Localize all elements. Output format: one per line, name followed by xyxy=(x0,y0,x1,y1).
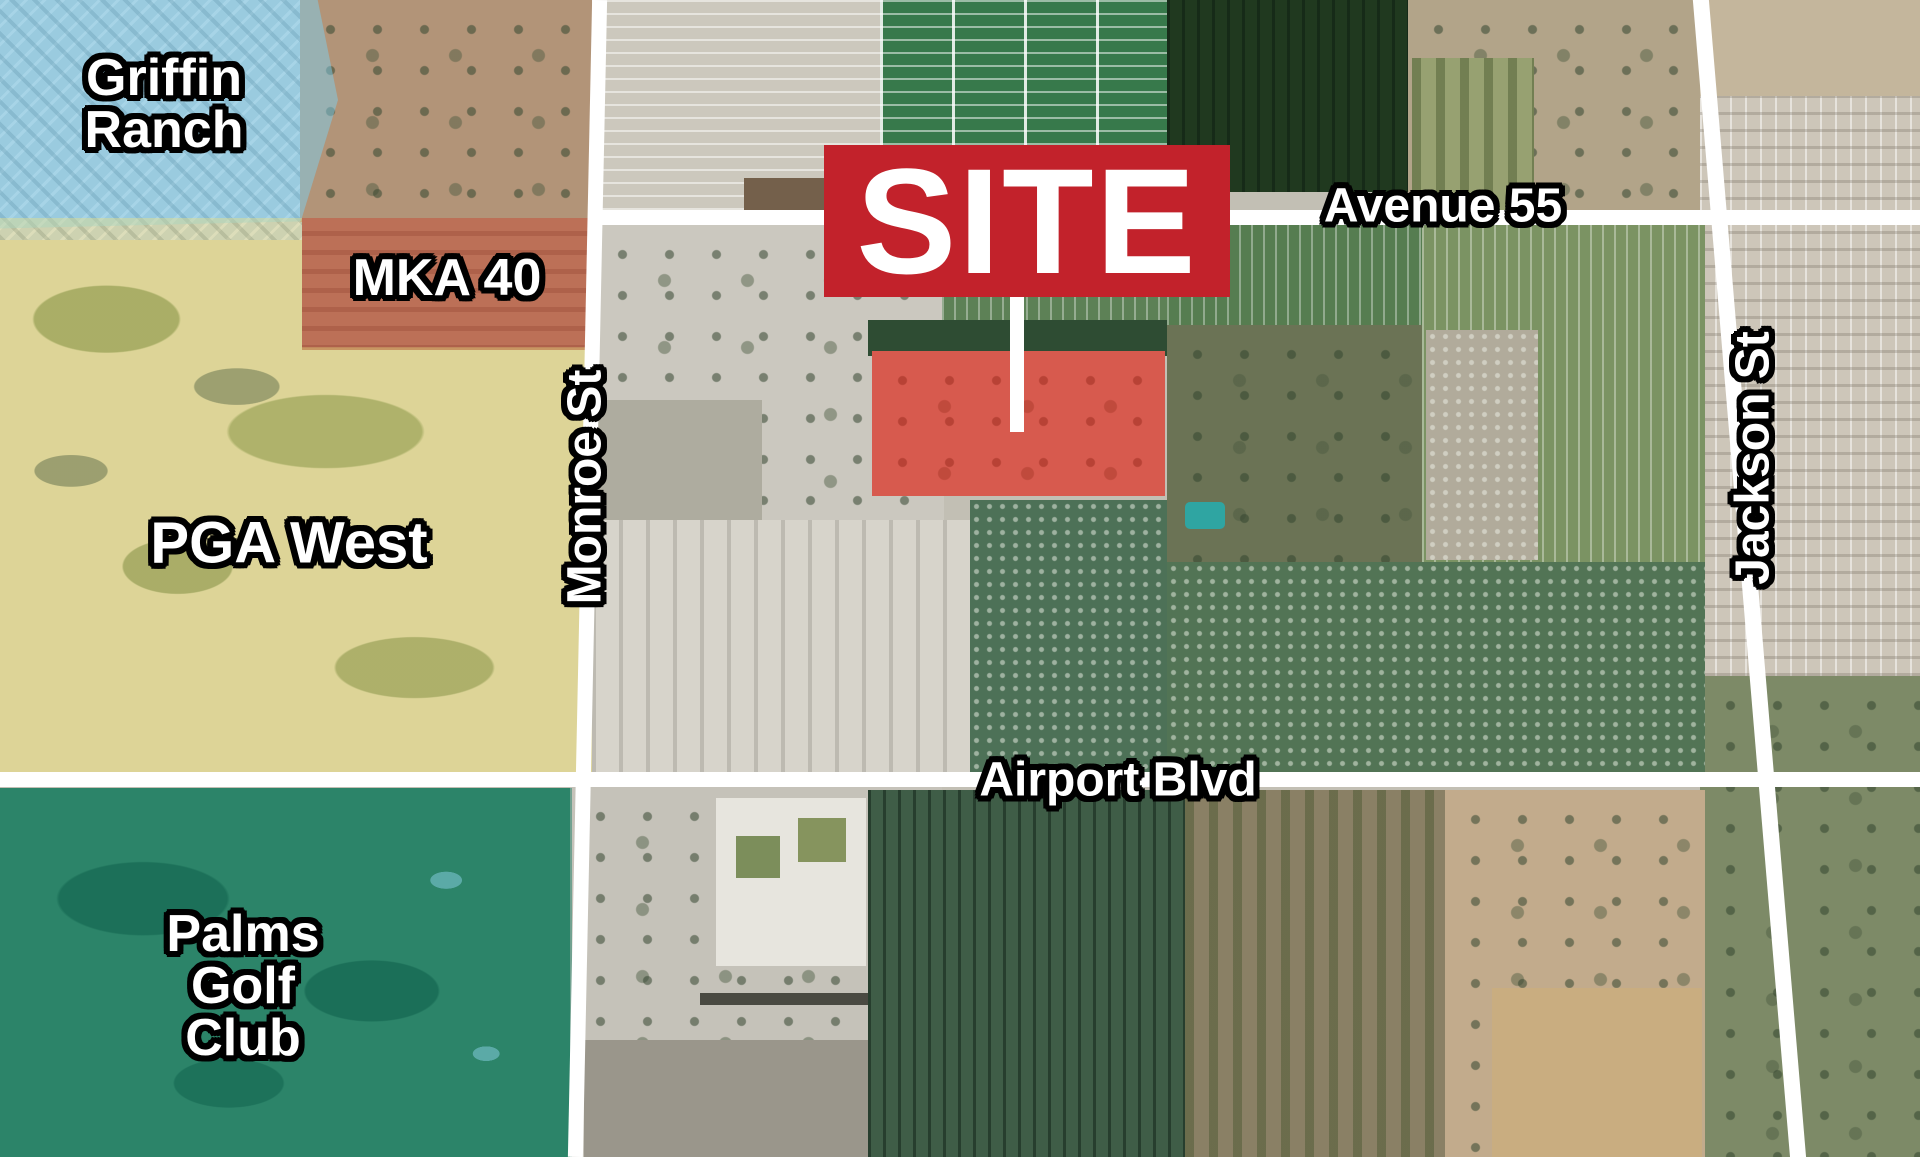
site-connector-line xyxy=(1010,296,1024,432)
label-griffin-ranch-line2: Ranch xyxy=(85,104,244,156)
label-jackson-st: Jackson St xyxy=(1726,331,1781,584)
shed-roof xyxy=(798,818,846,862)
label-griffin-ranch: Griffin Ranch xyxy=(85,52,244,156)
label-pga-west: PGA West xyxy=(150,510,427,577)
label-palms-line3: Club xyxy=(166,1012,319,1064)
road-airport-blvd xyxy=(0,772,1920,787)
estates-patch xyxy=(300,0,595,222)
label-avenue-55: Avenue 55 xyxy=(1324,179,1562,234)
arena-patch xyxy=(1492,988,1702,1157)
desert-patch-ne xyxy=(1700,0,1920,96)
site-banner-label: SITE xyxy=(856,146,1197,296)
orchard-big-patch xyxy=(1167,562,1705,773)
label-griffin-ranch-line1: Griffin xyxy=(85,52,244,104)
shed-roof xyxy=(736,836,780,878)
label-mka-40: MKA 40 xyxy=(353,248,542,308)
site-banner: SITE xyxy=(824,145,1230,297)
aerial-map: SITE Griffin Ranch MKA 40 PGA West Palms… xyxy=(0,0,1920,1157)
grey-rows-patch xyxy=(1426,330,1538,560)
scrub-patch-se xyxy=(1700,676,1920,1157)
pond xyxy=(1185,502,1225,529)
label-monroe-st: Monroe St xyxy=(558,370,613,605)
brown-orchard-patch-south xyxy=(1185,790,1445,1157)
label-palms-golf-club: Palms Golf Club xyxy=(166,908,319,1064)
label-airport-blvd: Airport Blvd xyxy=(979,753,1256,808)
shed-bar xyxy=(700,993,872,1005)
orchard-patch-mid xyxy=(970,500,1167,773)
grey-field-patch xyxy=(592,400,762,525)
dark-orchard-patch-south xyxy=(868,790,1185,1157)
label-palms-line2: Golf xyxy=(166,960,319,1012)
ploughed-field-patch xyxy=(592,520,970,773)
grey-field-patch-south xyxy=(584,1040,884,1157)
label-palms-line1: Palms xyxy=(166,908,319,960)
